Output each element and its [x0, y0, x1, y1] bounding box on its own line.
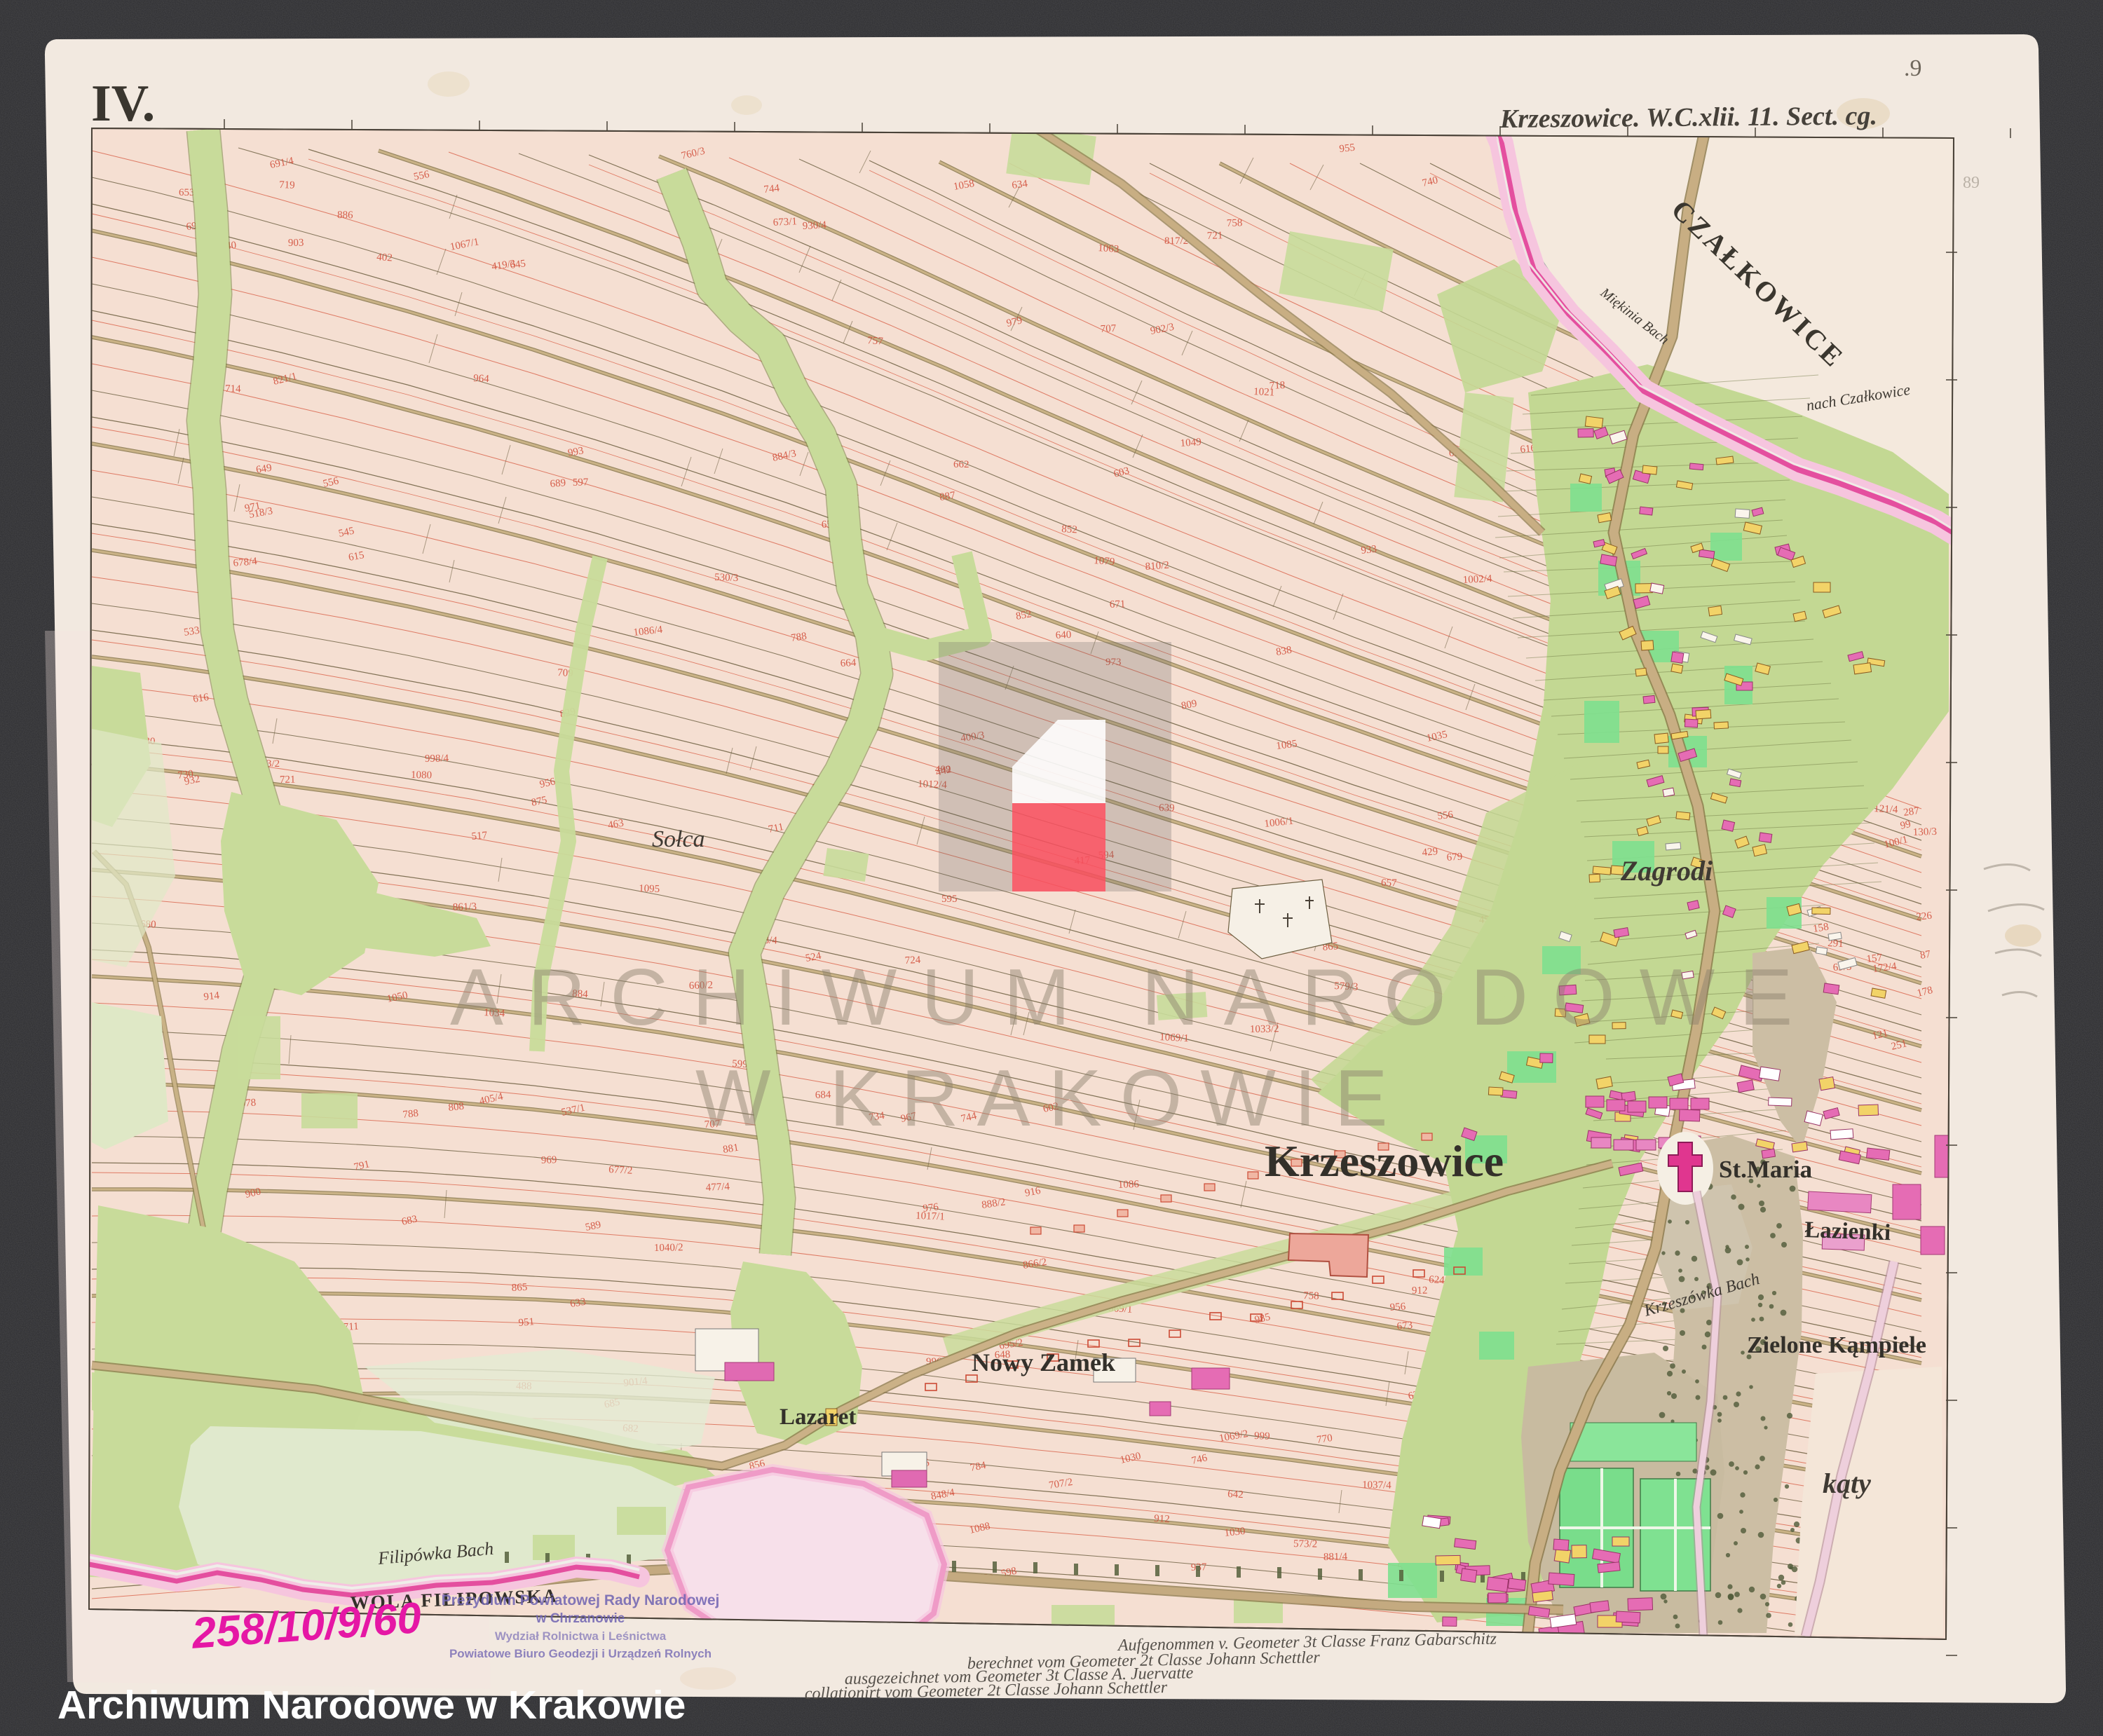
svg-text:597: 597 [573, 477, 590, 488]
svg-text:IV.: IV. [91, 75, 155, 132]
svg-text:429: 429 [1422, 846, 1438, 859]
svg-text:758: 758 [1303, 1290, 1319, 1302]
svg-text:969: 969 [541, 1154, 557, 1166]
svg-text:1086: 1086 [1118, 1179, 1140, 1191]
svg-text:1002/4: 1002/4 [1462, 573, 1492, 586]
svg-text:865: 865 [511, 1282, 527, 1294]
svg-text:673/1: 673/1 [773, 216, 797, 228]
svg-text:Zielone Kąmpiele: Zielone Kąmpiele [1747, 1332, 1926, 1358]
svg-text:287: 287 [1903, 805, 1920, 819]
svg-text:999: 999 [1254, 1430, 1270, 1442]
svg-text:707: 707 [1100, 323, 1117, 335]
svg-text:Powiatowe Biuro Geodezji i Urz: Powiatowe Biuro Geodezji i Urządzeń Roln… [449, 1647, 712, 1660]
svg-text:1030: 1030 [1224, 1526, 1246, 1539]
svg-text:998/4: 998/4 [425, 753, 449, 765]
svg-text:Lazaret: Lazaret [780, 1404, 856, 1430]
svg-text:744: 744 [763, 183, 781, 196]
svg-text:933: 933 [1361, 544, 1377, 556]
svg-text:640: 640 [1055, 629, 1071, 641]
svg-text:976: 976 [923, 1201, 940, 1215]
svg-text:671: 671 [1110, 599, 1126, 610]
svg-text:1095: 1095 [639, 883, 660, 895]
svg-text:624: 624 [1429, 1274, 1445, 1286]
svg-text:ARCHIWUM NARODOWE: ARCHIWUM NARODOWE [450, 953, 1817, 1042]
svg-text:Archiwum Narodowe w Krakowie: Archiwum Narodowe w Krakowie [57, 1683, 686, 1728]
svg-text:517: 517 [471, 830, 488, 842]
svg-text:St.Maria: St.Maria [1719, 1156, 1812, 1183]
svg-text:1063: 1063 [1098, 242, 1119, 255]
svg-text:w Chrzanowie: w Chrzanowie [536, 1611, 625, 1626]
svg-text:951: 951 [518, 1316, 535, 1329]
svg-text:130/3: 130/3 [1913, 826, 1938, 838]
svg-text:W KRAKOWIE: W KRAKOWIE [695, 1054, 1406, 1143]
svg-text:721: 721 [1207, 230, 1223, 242]
svg-text:852: 852 [1061, 524, 1078, 536]
svg-text:1040/2: 1040/2 [654, 1242, 683, 1254]
svg-text:689: 689 [550, 477, 566, 490]
svg-text:616: 616 [192, 692, 210, 705]
svg-text:912: 912 [1412, 1285, 1428, 1297]
svg-text:673: 673 [1396, 1320, 1413, 1332]
svg-text:718: 718 [1269, 380, 1285, 392]
svg-text:157: 157 [1866, 952, 1884, 965]
svg-text:573/2: 573/2 [1293, 1538, 1317, 1550]
svg-text:678/4: 678/4 [233, 556, 258, 569]
svg-text:719: 719 [279, 179, 295, 191]
svg-text:664: 664 [840, 657, 857, 669]
svg-text:642: 642 [1227, 1489, 1244, 1501]
svg-text:530/3: 530/3 [714, 572, 739, 584]
svg-text:662: 662 [953, 459, 969, 470]
svg-text:788: 788 [790, 631, 808, 644]
svg-text:89: 89 [1963, 174, 1980, 192]
svg-text:964: 964 [473, 373, 490, 385]
svg-text:1037/4: 1037/4 [1362, 1479, 1391, 1491]
svg-text:Łazienki: Łazienki [1804, 1217, 1891, 1245]
svg-text:477/4: 477/4 [705, 1181, 730, 1194]
svg-text:714: 714 [225, 383, 241, 395]
svg-text:757: 757 [867, 335, 884, 348]
svg-text:861/3: 861/3 [453, 901, 477, 913]
svg-text:887: 887 [939, 490, 956, 503]
svg-text:Wydział Rolnictwa i Leśnictwa: Wydział Rolnictwa i Leśnictwa [495, 1629, 667, 1643]
svg-text:886: 886 [337, 210, 353, 221]
svg-text:730: 730 [177, 768, 194, 781]
svg-text:kąty: kąty [1823, 1468, 1871, 1499]
svg-text:Krzeszowice: Krzeszowice [1265, 1136, 1504, 1186]
svg-text:903: 903 [288, 238, 304, 249]
svg-text:912: 912 [1154, 1513, 1170, 1525]
svg-text:645: 645 [510, 258, 526, 271]
svg-text:770: 770 [1316, 1433, 1333, 1446]
svg-text:956: 956 [1389, 1301, 1406, 1313]
svg-text:955: 955 [1339, 142, 1356, 155]
svg-text:930/4: 930/4 [802, 219, 826, 232]
svg-text:Nowy Zamek: Nowy Zamek [972, 1348, 1115, 1376]
svg-text:914: 914 [203, 990, 221, 1003]
svg-text:679: 679 [1446, 851, 1463, 863]
svg-text:1079: 1079 [1094, 555, 1115, 568]
svg-text:808: 808 [448, 1101, 465, 1114]
svg-text:Prezydium Powiatowej Rady Naro: Prezydium Powiatowej Rady Narodowej [442, 1592, 720, 1608]
svg-text:Krzeszowice. W.C.xlii. 11. Sec: Krzeszowice. W.C.xlii. 11. Sect. cg. [1499, 101, 1877, 134]
svg-text:Sołca: Sołca [652, 826, 705, 852]
svg-text:556: 556 [1437, 809, 1455, 822]
svg-text:634: 634 [1012, 178, 1029, 191]
svg-text:402: 402 [376, 252, 393, 264]
svg-text:Zagrodi: Zagrodi [1620, 855, 1713, 887]
svg-text:1080: 1080 [411, 770, 432, 781]
svg-text:657: 657 [1381, 877, 1397, 889]
svg-text:226: 226 [1916, 910, 1933, 923]
svg-text:595: 595 [941, 894, 958, 905]
svg-text:677/2: 677/2 [608, 1164, 633, 1177]
svg-text:788: 788 [402, 1108, 419, 1121]
svg-text:881/4: 881/4 [1323, 1551, 1348, 1563]
svg-text:721: 721 [280, 774, 296, 786]
svg-text:1049: 1049 [1180, 437, 1202, 449]
svg-text:.9: .9 [1904, 55, 1922, 81]
svg-text:758: 758 [1227, 217, 1243, 229]
svg-text:810/2: 810/2 [1145, 560, 1169, 573]
